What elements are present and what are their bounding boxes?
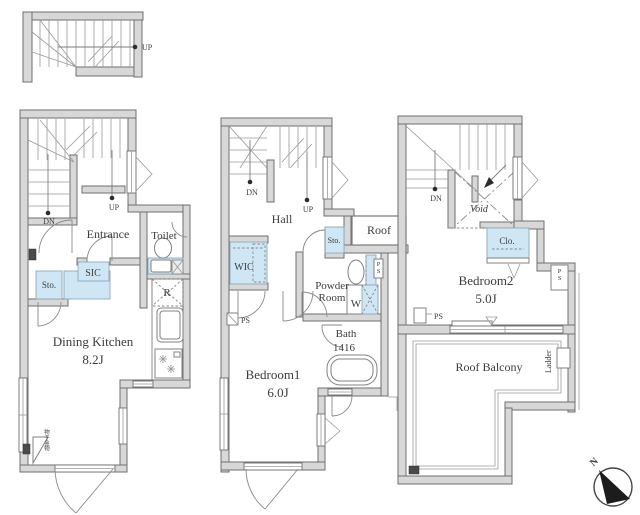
balcony-drain	[409, 466, 419, 474]
wall-meter	[29, 249, 36, 260]
room-label-roof-balcony: Roof Balcony	[456, 360, 523, 374]
entry-stair-treads	[32, 20, 130, 67]
kitchen-sink	[157, 308, 183, 342]
wall-fitting	[23, 444, 30, 454]
label-storage-f2: Sto.	[328, 236, 341, 245]
floor1-dn-label: DN	[43, 217, 55, 226]
floor1-up-label: UP	[109, 203, 120, 212]
floor1-plan: DN UP	[19, 110, 190, 513]
kitchen-stove	[155, 349, 182, 378]
floor-plan-svg: UP	[0, 0, 640, 515]
room-label-entrance: Entrance	[87, 227, 130, 241]
room-label-bedroom2: Bedroom2	[459, 273, 514, 288]
floor3-plan: DN Void	[398, 116, 579, 484]
label-ladder: Ladder	[544, 350, 553, 373]
entry-staircase: UP	[23, 12, 153, 82]
label-void: Void	[470, 204, 489, 215]
room-label-dining-kitchen: Dining Kitchen	[53, 334, 134, 349]
label-storage-f1: Sto.	[42, 280, 56, 290]
label-ps-vertical-f2: PS	[375, 261, 382, 275]
label-washer: W	[351, 298, 362, 310]
label-refrigerator: R	[163, 287, 171, 299]
room-label-toilet: Toilet	[151, 230, 177, 242]
label-roof: Roof	[367, 223, 391, 237]
room-label-powder1: Powder	[315, 280, 349, 292]
ps-wall-box-f2	[227, 313, 238, 325]
label-wic: WIC	[234, 262, 254, 273]
room-size-bedroom2: 5.0J	[475, 291, 496, 306]
room-size-dining-kitchen: 8.2J	[82, 352, 103, 367]
balcony-ladder	[557, 348, 570, 368]
floor2-up-label: UP	[303, 205, 314, 214]
label-bath-size: 1416	[333, 342, 356, 354]
label-ps-f2: PS	[241, 316, 250, 325]
room-size-bedroom1: 6.0J	[267, 385, 288, 400]
room-label-hall: Hall	[272, 212, 293, 226]
bathtub	[327, 355, 377, 385]
compass: N	[588, 455, 632, 506]
powder-sink	[348, 260, 364, 284]
floor2-plan: DN UP	[220, 118, 408, 509]
floor3-void: Void	[448, 172, 514, 228]
ps-wall-box-f3-left	[414, 308, 432, 323]
floor3-stair: DN	[406, 124, 506, 203]
room-label-bedroom1: Bedroom1	[246, 367, 301, 382]
label-closet-f3: Clo.	[499, 236, 514, 246]
room-label-powder2: Room	[319, 292, 346, 304]
toilet-ps-hatch	[172, 260, 183, 274]
label-sic: SIC	[85, 268, 101, 279]
floor2-dn-label: DN	[246, 188, 258, 197]
corner-note-label: 物干金物	[43, 428, 50, 453]
label-ps-f3: PS	[434, 312, 443, 321]
floor3-dn-label: DN	[430, 194, 442, 203]
north-label: N	[588, 455, 601, 469]
label-ps-vertical-f3: PS	[556, 268, 563, 282]
entry-stair-up-label: UP	[142, 43, 153, 52]
label-bath: Bath	[336, 328, 357, 340]
floor-plan-page: UP	[0, 0, 640, 515]
north-arrow	[599, 470, 630, 504]
toilet-tank	[151, 260, 171, 272]
